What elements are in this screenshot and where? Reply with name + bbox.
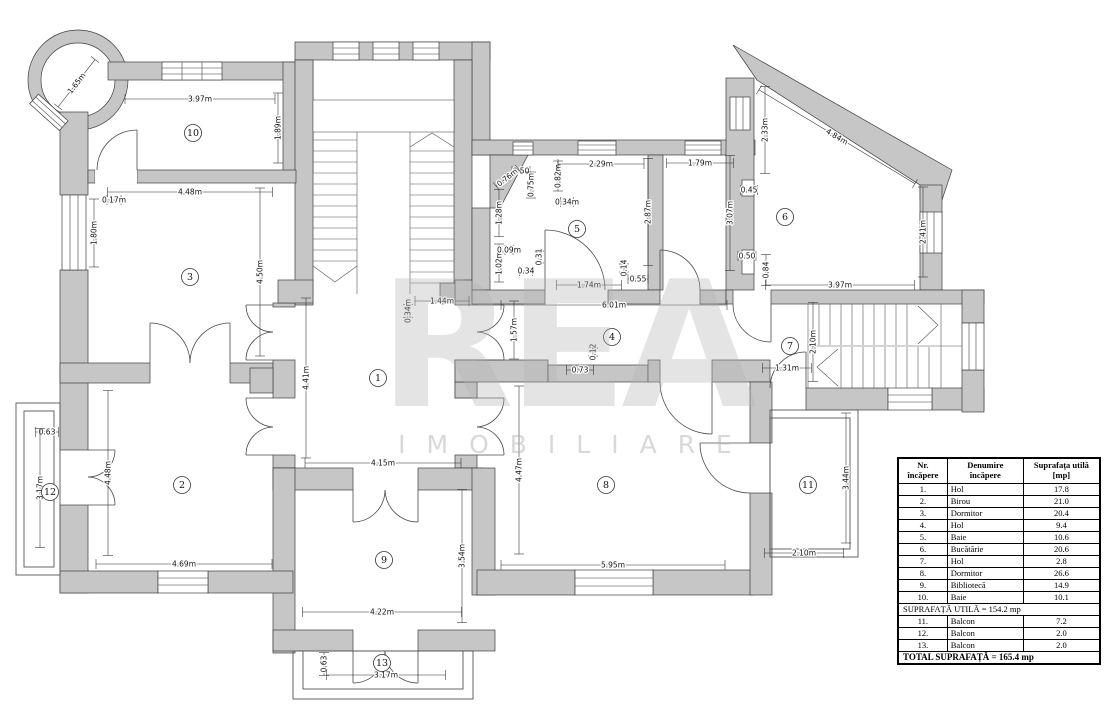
- table-header-row: Nr.încăpere Denumireîncăpere Suprafața u…: [898, 458, 1100, 484]
- svg-text:4.48m: 4.48m: [178, 188, 202, 197]
- window-room8-bottom: [575, 570, 653, 595]
- header-nr: Nr.încăpere: [898, 458, 947, 484]
- dimension-label: 2.10m: [808, 303, 818, 382]
- window-room3-left: [62, 195, 86, 270]
- dimension-label: 0.34m: [403, 299, 413, 323]
- dimension-label: 0.12: [588, 343, 598, 360]
- window-stair-right: [962, 323, 984, 370]
- svg-text:4.41m: 4.41m: [302, 366, 311, 390]
- svg-text:1.44m: 1.44m: [430, 297, 454, 306]
- svg-text:1.28m: 1.28m: [495, 201, 504, 225]
- dimension-label: 4.15m: [305, 458, 461, 468]
- svg-text:12: 12: [44, 487, 56, 498]
- svg-text:0.73: 0.73: [572, 366, 589, 375]
- svg-text:0.14: 0.14: [620, 259, 629, 276]
- dimension-label: 3.97m: [766, 280, 915, 290]
- dimension-label: 0.09m: [497, 245, 521, 255]
- svg-text:5.95m: 5.95m: [601, 561, 625, 570]
- svg-text:4.22m: 4.22m: [370, 608, 394, 617]
- svg-text:3: 3: [187, 272, 193, 283]
- window-room5-small: [513, 142, 533, 155]
- area-legend-table: Nr.încăpere Denumireîncăpere Suprafața u…: [897, 457, 1101, 665]
- dimension-label: 0.50: [738, 251, 756, 261]
- room-number-badge: 2: [174, 477, 191, 494]
- svg-text:3.07m: 3.07m: [726, 201, 735, 225]
- svg-text:1.80m: 1.80m: [90, 221, 99, 245]
- svg-text:2.87m: 2.87m: [644, 200, 653, 224]
- dimension-label: 3.97m: [125, 94, 275, 104]
- total-row: TOTAL SUPRAFAȚĂ = 165.4 mp: [898, 652, 1100, 665]
- svg-text:0.09m: 0.09m: [497, 246, 521, 255]
- svg-text:3.97m: 3.97m: [188, 95, 212, 104]
- svg-text:0.50: 0.50: [739, 252, 756, 261]
- dimension-label: 1.79m: [667, 158, 734, 168]
- room-number-badge: 10: [185, 125, 202, 142]
- table-row: 4.Hol9.4: [898, 520, 1100, 532]
- svg-text:13: 13: [376, 658, 388, 669]
- svg-text:2.10m: 2.10m: [809, 330, 818, 354]
- svg-text:0.17m: 0.17m: [102, 196, 126, 205]
- svg-text:1.31m: 1.31m: [775, 364, 799, 373]
- dimension-label: 4.50m: [255, 188, 265, 356]
- window-kitchen-left: [730, 97, 750, 130]
- room-number-badge: 9: [376, 552, 393, 569]
- svg-text:4.69m: 4.69m: [172, 560, 196, 569]
- svg-text:4: 4: [609, 332, 615, 343]
- dimension-label: 4.22m: [303, 607, 462, 617]
- dimension-label: 0.63: [319, 653, 329, 676]
- room-number-badge: 3: [182, 269, 199, 286]
- table-row: 2.Birou21.0: [898, 496, 1100, 508]
- dimension-label: 4.48m: [108, 187, 273, 197]
- doors-layer: [88, 130, 806, 683]
- dimension-label: 0.75m: [526, 172, 536, 198]
- room-number-badge: 8: [598, 477, 615, 494]
- dimension-label: 1.89m: [273, 93, 283, 163]
- table-row: 9.Bibliotecă14.9: [898, 580, 1100, 592]
- dimension-label: 1.57m: [509, 301, 519, 359]
- dimension-label: 0.45: [741, 185, 758, 195]
- dimension-label: 0.31: [534, 248, 544, 265]
- window-room10-top: [162, 62, 222, 80]
- svg-text:1: 1: [375, 373, 381, 384]
- svg-text:1.79m: 1.79m: [688, 159, 712, 168]
- table-row: 5.Baie10.6: [898, 532, 1100, 544]
- room-number-badge: 12: [42, 484, 59, 501]
- svg-text:2.10m: 2.10m: [792, 549, 816, 558]
- table-row: 8.Dormitor26.6: [898, 568, 1100, 580]
- table-row: 6.Bucătărie20.6: [898, 544, 1100, 556]
- dimension-label: 1.74m: [557, 280, 622, 290]
- dimension-label: 4.69m: [96, 559, 272, 569]
- dimension-label: 0.84: [761, 255, 771, 286]
- svg-text:0.63: 0.63: [39, 428, 56, 437]
- svg-text:4.15m: 4.15m: [371, 459, 395, 468]
- dimension-label: 4.41m: [301, 298, 311, 458]
- dimension-label: 3.17m: [327, 670, 446, 680]
- room-number-badge: 5: [569, 221, 586, 238]
- dimension-label: 0.55: [628, 274, 648, 284]
- svg-text:7: 7: [787, 341, 793, 352]
- room-number-badge: 7: [782, 338, 799, 355]
- window-stair-bottom: [888, 388, 932, 410]
- dimension-label: 0.34: [518, 266, 535, 276]
- dimension-label: 2.29m: [558, 159, 644, 169]
- svg-text:0.63: 0.63: [320, 655, 329, 672]
- svg-text:1.57m: 1.57m: [510, 318, 519, 342]
- window-room2-bottom: [158, 571, 208, 593]
- room-number-badge: 1: [370, 370, 387, 387]
- header-denumire: Denumireîncăpere: [947, 458, 1023, 484]
- window-stair-top-1: [333, 42, 359, 60]
- svg-text:6.01m: 6.01m: [602, 301, 626, 310]
- svg-text:0.31: 0.31: [535, 248, 544, 265]
- dimension-label: 0.17m: [102, 195, 126, 205]
- svg-text:0.84: 0.84: [762, 261, 771, 278]
- svg-text:1.74m: 1.74m: [577, 281, 601, 290]
- dimension-label: 0.14: [619, 259, 629, 276]
- svg-text:4.47m: 4.47m: [515, 458, 524, 482]
- dimension-label: 4.47m: [514, 386, 524, 554]
- dimension-label: 3.54m: [457, 490, 467, 623]
- room-number-badge: 13: [374, 655, 391, 672]
- table-row: 13.Balcon2.0: [898, 640, 1100, 652]
- svg-text:4.48m: 4.48m: [104, 461, 113, 485]
- right-staircase: [808, 304, 962, 388]
- table-row: 3.Dormitor20.4: [898, 508, 1100, 520]
- svg-text:0.75m: 0.75m: [527, 173, 536, 197]
- room-number-badge: 6: [777, 209, 794, 226]
- svg-text:0.34: 0.34: [518, 267, 535, 276]
- floor-plan-page: 1.65m3.97m1.89m4.48m0.17m1.80m4.50m0.500…: [0, 0, 1112, 720]
- svg-text:0.34m: 0.34m: [555, 198, 579, 207]
- svg-text:10: 10: [187, 128, 199, 139]
- svg-text:3.44m: 3.44m: [842, 466, 851, 490]
- subtotal-row: SUPRAFAȚĂ UTILĂ = 154.2 mp: [898, 604, 1100, 616]
- window-room5-top: [578, 141, 616, 155]
- dimension-label: 1.80m: [89, 199, 99, 267]
- dimension-label: 3.44m: [841, 413, 851, 543]
- dimension-label: 0.34m: [555, 197, 579, 207]
- svg-text:11: 11: [802, 480, 814, 491]
- svg-text:0.34m: 0.34m: [404, 299, 413, 323]
- svg-text:9: 9: [381, 555, 387, 566]
- svg-text:2.29m: 2.29m: [589, 160, 613, 169]
- svg-text:2.33m: 2.33m: [761, 118, 770, 142]
- svg-text:1.89m: 1.89m: [274, 116, 283, 140]
- window-stair-top-3: [413, 42, 439, 60]
- window-room4a-top: [685, 141, 721, 155]
- table-row: 11.Balcon7.2: [898, 616, 1100, 628]
- svg-text:0.55: 0.55: [630, 275, 647, 284]
- svg-text:6: 6: [782, 212, 788, 223]
- room-number-badge: 4: [604, 329, 621, 346]
- svg-text:0.12: 0.12: [589, 343, 598, 360]
- svg-text:3.54m: 3.54m: [458, 544, 467, 568]
- svg-text:1.02m: 1.02m: [495, 251, 504, 275]
- table-row: 7.Hol2.8: [898, 556, 1100, 568]
- svg-text:5: 5: [574, 224, 580, 235]
- central-staircase: [313, 100, 454, 294]
- table-row: 1.Hol17.8: [898, 484, 1100, 496]
- dimension-label: 2.33m: [760, 87, 770, 174]
- svg-text:8: 8: [603, 480, 609, 491]
- svg-text:3.97m: 3.97m: [828, 281, 852, 290]
- dimension-label: 4.48m: [103, 391, 113, 556]
- dimension-label: 5.95m: [501, 560, 725, 570]
- svg-text:4.50m: 4.50m: [256, 260, 265, 284]
- table-row: 10.Baie10.1: [898, 592, 1100, 604]
- svg-text:2.41m: 2.41m: [919, 220, 928, 244]
- window-stair-top-2: [373, 42, 399, 60]
- svg-text:0.45: 0.45: [741, 186, 758, 195]
- svg-text:3.17m: 3.17m: [374, 671, 398, 680]
- dimension-label: 2.10m: [765, 548, 844, 558]
- table-row: 12.Balcon2.0: [898, 628, 1100, 640]
- svg-text:2: 2: [179, 480, 185, 491]
- room-number-badge: 11: [800, 477, 817, 494]
- header-suprafata: Suprafața utilă[mp]: [1023, 458, 1100, 484]
